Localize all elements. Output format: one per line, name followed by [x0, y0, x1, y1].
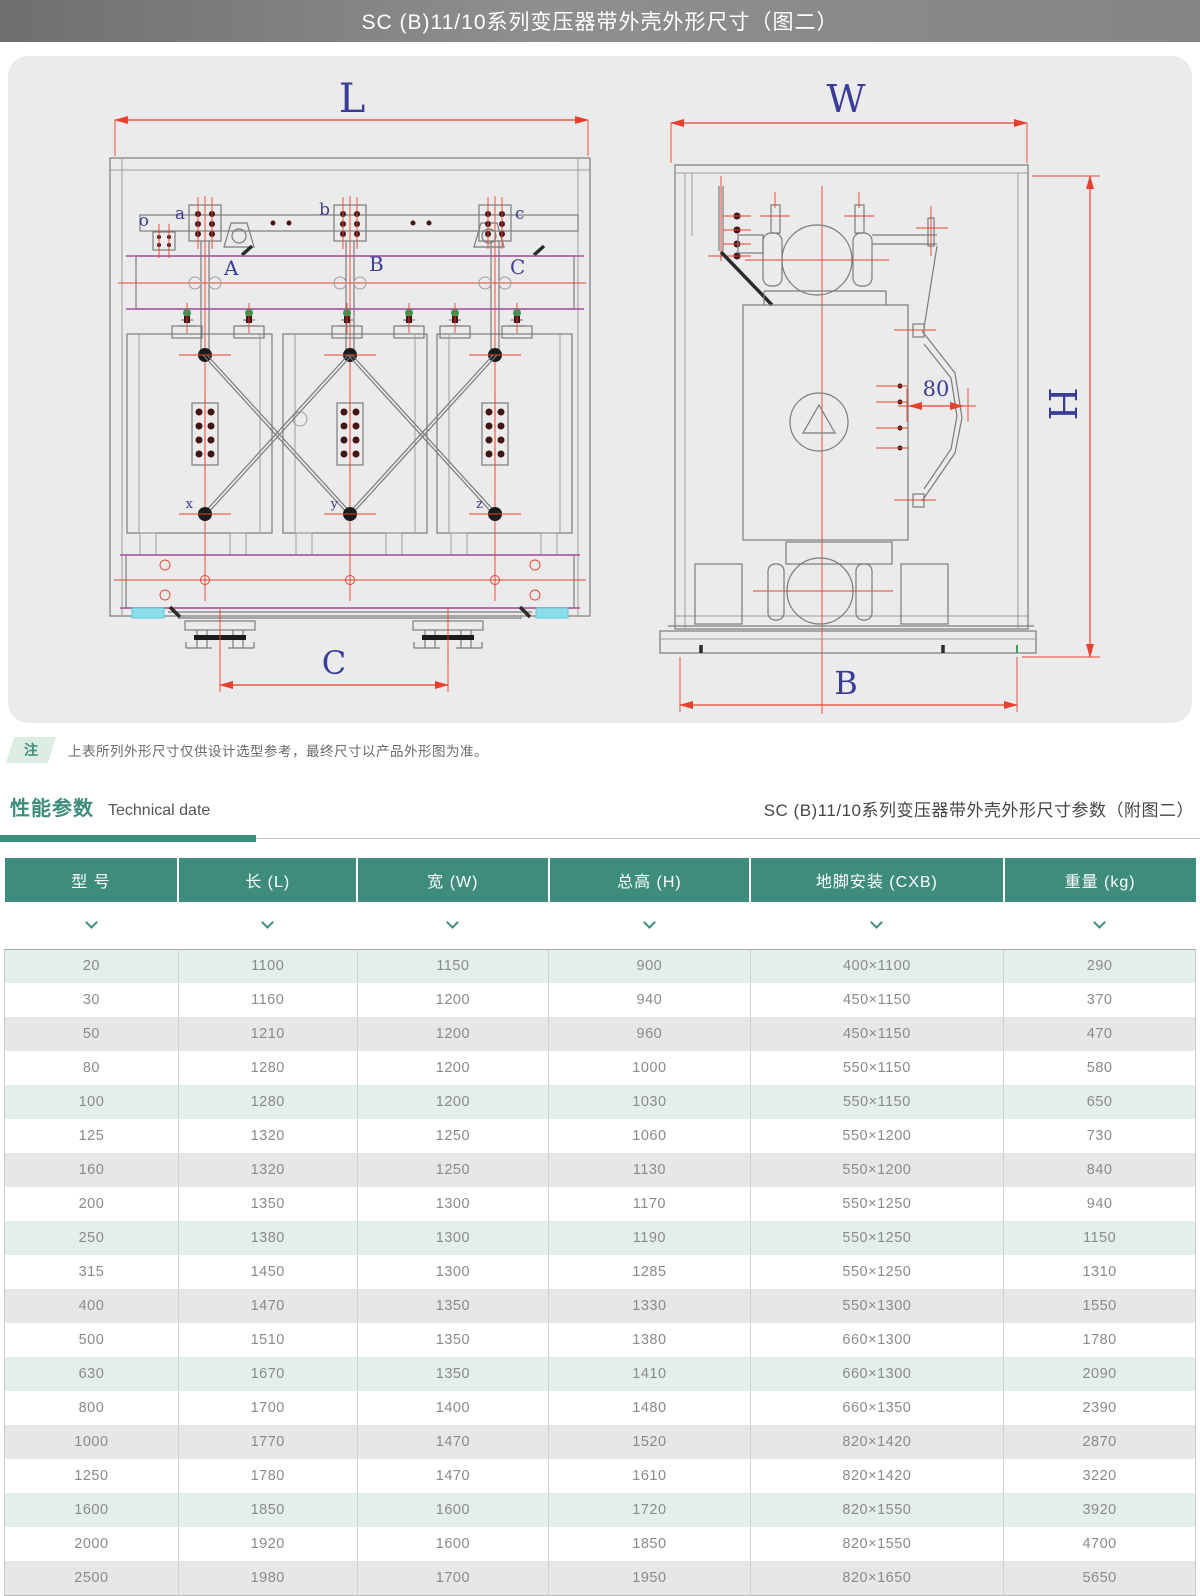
table-cell: 550×1150 [750, 1051, 1004, 1085]
table-cell: 1350 [357, 1289, 549, 1323]
table-row: 250138013001190550×12501150 [5, 1221, 1196, 1255]
table-cell: 1200 [357, 1085, 549, 1119]
dimension-C: C [220, 644, 448, 692]
table-cell: 1400 [357, 1391, 549, 1425]
note-row: 注 上表所列外形尺寸仅供设计选型参考，最终尺寸以产品外形图为准。 [0, 737, 1200, 763]
table-row: 800170014001480660×13502390 [5, 1391, 1196, 1425]
filter-cell[interactable] [750, 902, 1004, 949]
table-cell: 2000 [5, 1527, 179, 1561]
cable-box-door [894, 324, 962, 507]
table-cell: 1350 [357, 1323, 549, 1357]
table-cell: 660×1350 [750, 1391, 1004, 1425]
dim-label-L: L [339, 76, 366, 122]
table-row: 2000192016001850820×15504700 [5, 1527, 1196, 1561]
table-cell: 1130 [549, 1153, 750, 1187]
table-cell: 1380 [178, 1221, 357, 1255]
table-cell: 3920 [1004, 1493, 1196, 1527]
table-cell: 1350 [178, 1187, 357, 1221]
table-cell: 450×1150 [750, 1017, 1004, 1051]
column-header: 重量 (kg) [1004, 858, 1196, 902]
table-cell: 1285 [549, 1255, 750, 1289]
table-cell: 4700 [1004, 1527, 1196, 1561]
table-cell: 1610 [549, 1459, 750, 1493]
table-cell: 1670 [178, 1357, 357, 1391]
terminal-label-b: b [319, 200, 330, 220]
table-cell: 1030 [549, 1085, 750, 1119]
phase-label-C: C [510, 255, 525, 279]
table-cell: 1300 [357, 1187, 549, 1221]
table-row: 160132012501130550×1200840 [5, 1153, 1196, 1187]
table-cell: 80 [5, 1051, 179, 1085]
table-cell: 470 [1004, 1017, 1196, 1051]
table-cell: 1320 [178, 1119, 357, 1153]
table-cell: 1480 [549, 1391, 750, 1425]
table-cell: 940 [549, 983, 750, 1017]
column-header: 宽 (W) [357, 858, 549, 902]
transformer-drawing: L o a b c A B C [8, 56, 1192, 723]
table-cell: 820×1650 [750, 1561, 1004, 1595]
filter-cell[interactable] [5, 902, 179, 949]
table-cell: 500 [5, 1323, 179, 1357]
table-cell: 1850 [178, 1493, 357, 1527]
table-row: 200135013001170550×1250940 [5, 1187, 1196, 1221]
table-cell: 1720 [549, 1493, 750, 1527]
table-cell: 1320 [178, 1153, 357, 1187]
table-cell: 1280 [178, 1085, 357, 1119]
note-badge: 注 [6, 737, 56, 763]
table-cell: 1550 [1004, 1289, 1196, 1323]
table-row: 100128012001030550×1150650 [5, 1085, 1196, 1119]
dim-label-80: 80 [923, 377, 950, 401]
table-cell: 1410 [549, 1357, 750, 1391]
terminal-label-a: a [175, 204, 185, 224]
dim-label-C: C [322, 644, 346, 682]
table-cell: 550×1200 [750, 1153, 1004, 1187]
table-row: 1000177014701520820×14202870 [5, 1425, 1196, 1459]
dimension-W: W [671, 77, 1027, 163]
terminal-label-o: o [139, 211, 149, 231]
neutral-label-x: x [186, 497, 194, 512]
table-cell: 1060 [549, 1119, 750, 1153]
section-divider [0, 835, 1200, 842]
filter-cell[interactable] [549, 902, 750, 949]
table-cell: 820×1420 [750, 1459, 1004, 1493]
table-cell: 550×1200 [750, 1119, 1004, 1153]
chevron-down-icon[interactable] [261, 916, 274, 929]
table-cell: 450×1150 [750, 983, 1004, 1017]
table-cell: 1950 [549, 1561, 750, 1595]
table-cell: 550×1250 [750, 1187, 1004, 1221]
table-cell: 1310 [1004, 1255, 1196, 1289]
table-cell: 940 [1004, 1187, 1196, 1221]
note-text: 上表所列外形尺寸仅供设计选型参考，最终尺寸以产品外形图为准。 [68, 740, 488, 760]
table-cell: 1210 [178, 1017, 357, 1051]
table-cell: 250 [5, 1221, 179, 1255]
table-header-row: 型 号长 (L)宽 (W)总高 (H)地脚安装 (CXB)重量 (kg) [5, 858, 1196, 902]
table-cell: 1170 [549, 1187, 750, 1221]
neutral-label-y: y [330, 497, 339, 512]
dim-label-H: H [1040, 387, 1084, 420]
table-cell: 1100 [178, 949, 357, 983]
table-cell: 1520 [549, 1425, 750, 1459]
table-row: 1250178014701610820×14203220 [5, 1459, 1196, 1493]
page-title: SC (B)11/10系列变压器带外壳外形尺寸（图二） [362, 6, 839, 36]
column-header: 地脚安装 (CXB) [750, 858, 1004, 902]
drawing-panel: L o a b c A B C [8, 56, 1192, 723]
table-cell: 2090 [1004, 1357, 1196, 1391]
table-cell: 3220 [1004, 1459, 1196, 1493]
table-cell: 20 [5, 949, 179, 983]
table-row: 400147013501330550×13001550 [5, 1289, 1196, 1323]
table-cell: 2390 [1004, 1391, 1196, 1425]
table-body: 2011001150900400×11002903011601200940450… [5, 949, 1196, 1595]
table-cell: 650 [1004, 1085, 1196, 1119]
table-row: 315145013001285550×12501310 [5, 1255, 1196, 1289]
table-cell: 550×1250 [750, 1255, 1004, 1289]
table-cell: 2500 [5, 1561, 179, 1595]
front-view: L o a b c A B C [110, 76, 590, 692]
table-cell: 5650 [1004, 1561, 1196, 1595]
table-cell: 1200 [357, 983, 549, 1017]
column-header: 型 号 [5, 858, 179, 902]
table-cell: 800 [5, 1391, 179, 1425]
table-cell: 630 [5, 1357, 179, 1391]
column-header: 总高 (H) [549, 858, 750, 902]
table-cell: 1380 [549, 1323, 750, 1357]
table-cell: 1150 [1004, 1221, 1196, 1255]
table-row: 1600185016001720820×15503920 [5, 1493, 1196, 1527]
table-cell: 1200 [357, 1017, 549, 1051]
table-cell: 550×1300 [750, 1289, 1004, 1323]
dimension-B: B [680, 657, 1017, 712]
filter-cell[interactable] [1004, 902, 1196, 949]
table-cell: 1350 [357, 1357, 549, 1391]
table-cell: 1250 [357, 1153, 549, 1187]
table-filter-row [5, 902, 1196, 949]
table-cell: 1770 [178, 1425, 357, 1459]
table-cell: 1300 [357, 1221, 549, 1255]
table-cell: 1330 [549, 1289, 750, 1323]
table-cell: 900 [549, 949, 750, 983]
filter-cell[interactable] [357, 902, 549, 949]
table-cell: 1280 [178, 1051, 357, 1085]
table-cell: 1850 [549, 1527, 750, 1561]
chevron-down-icon[interactable] [1093, 916, 1106, 929]
table-cell: 1780 [178, 1459, 357, 1493]
table-cell: 1920 [178, 1527, 357, 1561]
table-cell: 580 [1004, 1051, 1196, 1085]
table-cell: 1300 [357, 1255, 549, 1289]
table-cell: 1600 [357, 1527, 549, 1561]
table-cell: 550×1250 [750, 1221, 1004, 1255]
table-cell: 1700 [178, 1391, 357, 1425]
table-cell: 1600 [357, 1493, 549, 1527]
table-cell: 1700 [357, 1561, 549, 1595]
tank-body [743, 305, 908, 540]
terminal-label-c: c [515, 204, 525, 224]
delta-winding-symbol [790, 393, 848, 451]
filter-cell[interactable] [178, 902, 357, 949]
table-cell: 1470 [357, 1459, 549, 1493]
table-row: 3011601200940450×1150370 [5, 983, 1196, 1017]
phase-label-B: B [369, 252, 384, 276]
table-cell: 1600 [5, 1493, 179, 1527]
table-row: 500151013501380660×13001780 [5, 1323, 1196, 1357]
table-cell: 100 [5, 1085, 179, 1119]
dim-label-B: B [834, 664, 858, 702]
side-view: W H [660, 77, 1100, 714]
table-cell: 1450 [178, 1255, 357, 1289]
chevron-down-icon[interactable] [643, 916, 656, 929]
table-cell: 370 [1004, 983, 1196, 1017]
table-cell: 50 [5, 1017, 179, 1051]
table-cell: 2870 [1004, 1425, 1196, 1459]
table-cell: 200 [5, 1187, 179, 1221]
table-cell: 1150 [357, 949, 549, 983]
table-cell: 660×1300 [750, 1323, 1004, 1357]
table-cell: 1190 [549, 1221, 750, 1255]
column-header: 长 (L) [178, 858, 357, 902]
table-cell: 820×1550 [750, 1527, 1004, 1561]
phase-label-A: A [223, 256, 239, 280]
table-cell: 1250 [357, 1119, 549, 1153]
section-header: 性能参数 Technical date SC (B)11/10系列变压器带外壳外… [0, 787, 1200, 821]
title-bar: SC (B)11/10系列变压器带外壳外形尺寸（图二） [0, 0, 1200, 42]
table-cell: 400 [5, 1289, 179, 1323]
table-cell: 1470 [178, 1289, 357, 1323]
table-cell: 290 [1004, 949, 1196, 983]
spec-table: 型 号长 (L)宽 (W)总高 (H)地脚安装 (CXB)重量 (kg) 201… [4, 858, 1196, 1596]
table-cell: 30 [5, 983, 179, 1017]
section-title-cn: 性能参数 [10, 792, 94, 821]
table-cell: 820×1550 [750, 1493, 1004, 1527]
table-cell: 1000 [5, 1425, 179, 1459]
table-cell: 160 [5, 1153, 179, 1187]
table-row: 5012101200960450×1150470 [5, 1017, 1196, 1051]
section-subtitle: SC (B)11/10系列变压器带外壳外形尺寸参数（附图二） [764, 796, 1194, 821]
table-cell: 1470 [357, 1425, 549, 1459]
table-cell: 1200 [357, 1051, 549, 1085]
table-cell: 400×1100 [750, 949, 1004, 983]
table-cell: 820×1420 [750, 1425, 1004, 1459]
table-cell: 1000 [549, 1051, 750, 1085]
divider-accent [0, 835, 256, 842]
table-cell: 960 [549, 1017, 750, 1051]
dimension-80: 80 [898, 377, 976, 422]
table-cell: 1160 [178, 983, 357, 1017]
table-cell: 1780 [1004, 1323, 1196, 1357]
side-enclosure [675, 165, 1028, 629]
table-cell: 660×1300 [750, 1357, 1004, 1391]
section-title-en: Technical date [108, 802, 210, 820]
neutral-label-z: z [476, 497, 483, 512]
table-row: 125132012501060550×1200730 [5, 1119, 1196, 1153]
table-cell: 840 [1004, 1153, 1196, 1187]
dimension-L: L [115, 76, 588, 156]
table-row: 2500198017001950820×16505650 [5, 1561, 1196, 1595]
table-cell: 730 [1004, 1119, 1196, 1153]
chevron-down-icon[interactable] [85, 916, 98, 929]
table-row: 2011001150900400×1100290 [5, 949, 1196, 983]
table-cell: 1250 [5, 1459, 179, 1493]
table-cell: 550×1150 [750, 1085, 1004, 1119]
table-row: 630167013501410660×13002090 [5, 1357, 1196, 1391]
chevron-down-icon[interactable] [447, 916, 460, 929]
table-row: 80128012001000550×1150580 [5, 1051, 1196, 1085]
table-cell: 125 [5, 1119, 179, 1153]
table-cell: 1510 [178, 1323, 357, 1357]
dim-label-W: W [826, 77, 865, 121]
chevron-down-icon[interactable] [870, 916, 883, 929]
dimension-H: H [1022, 176, 1100, 657]
table-cell: 315 [5, 1255, 179, 1289]
table-cell: 1980 [178, 1561, 357, 1595]
